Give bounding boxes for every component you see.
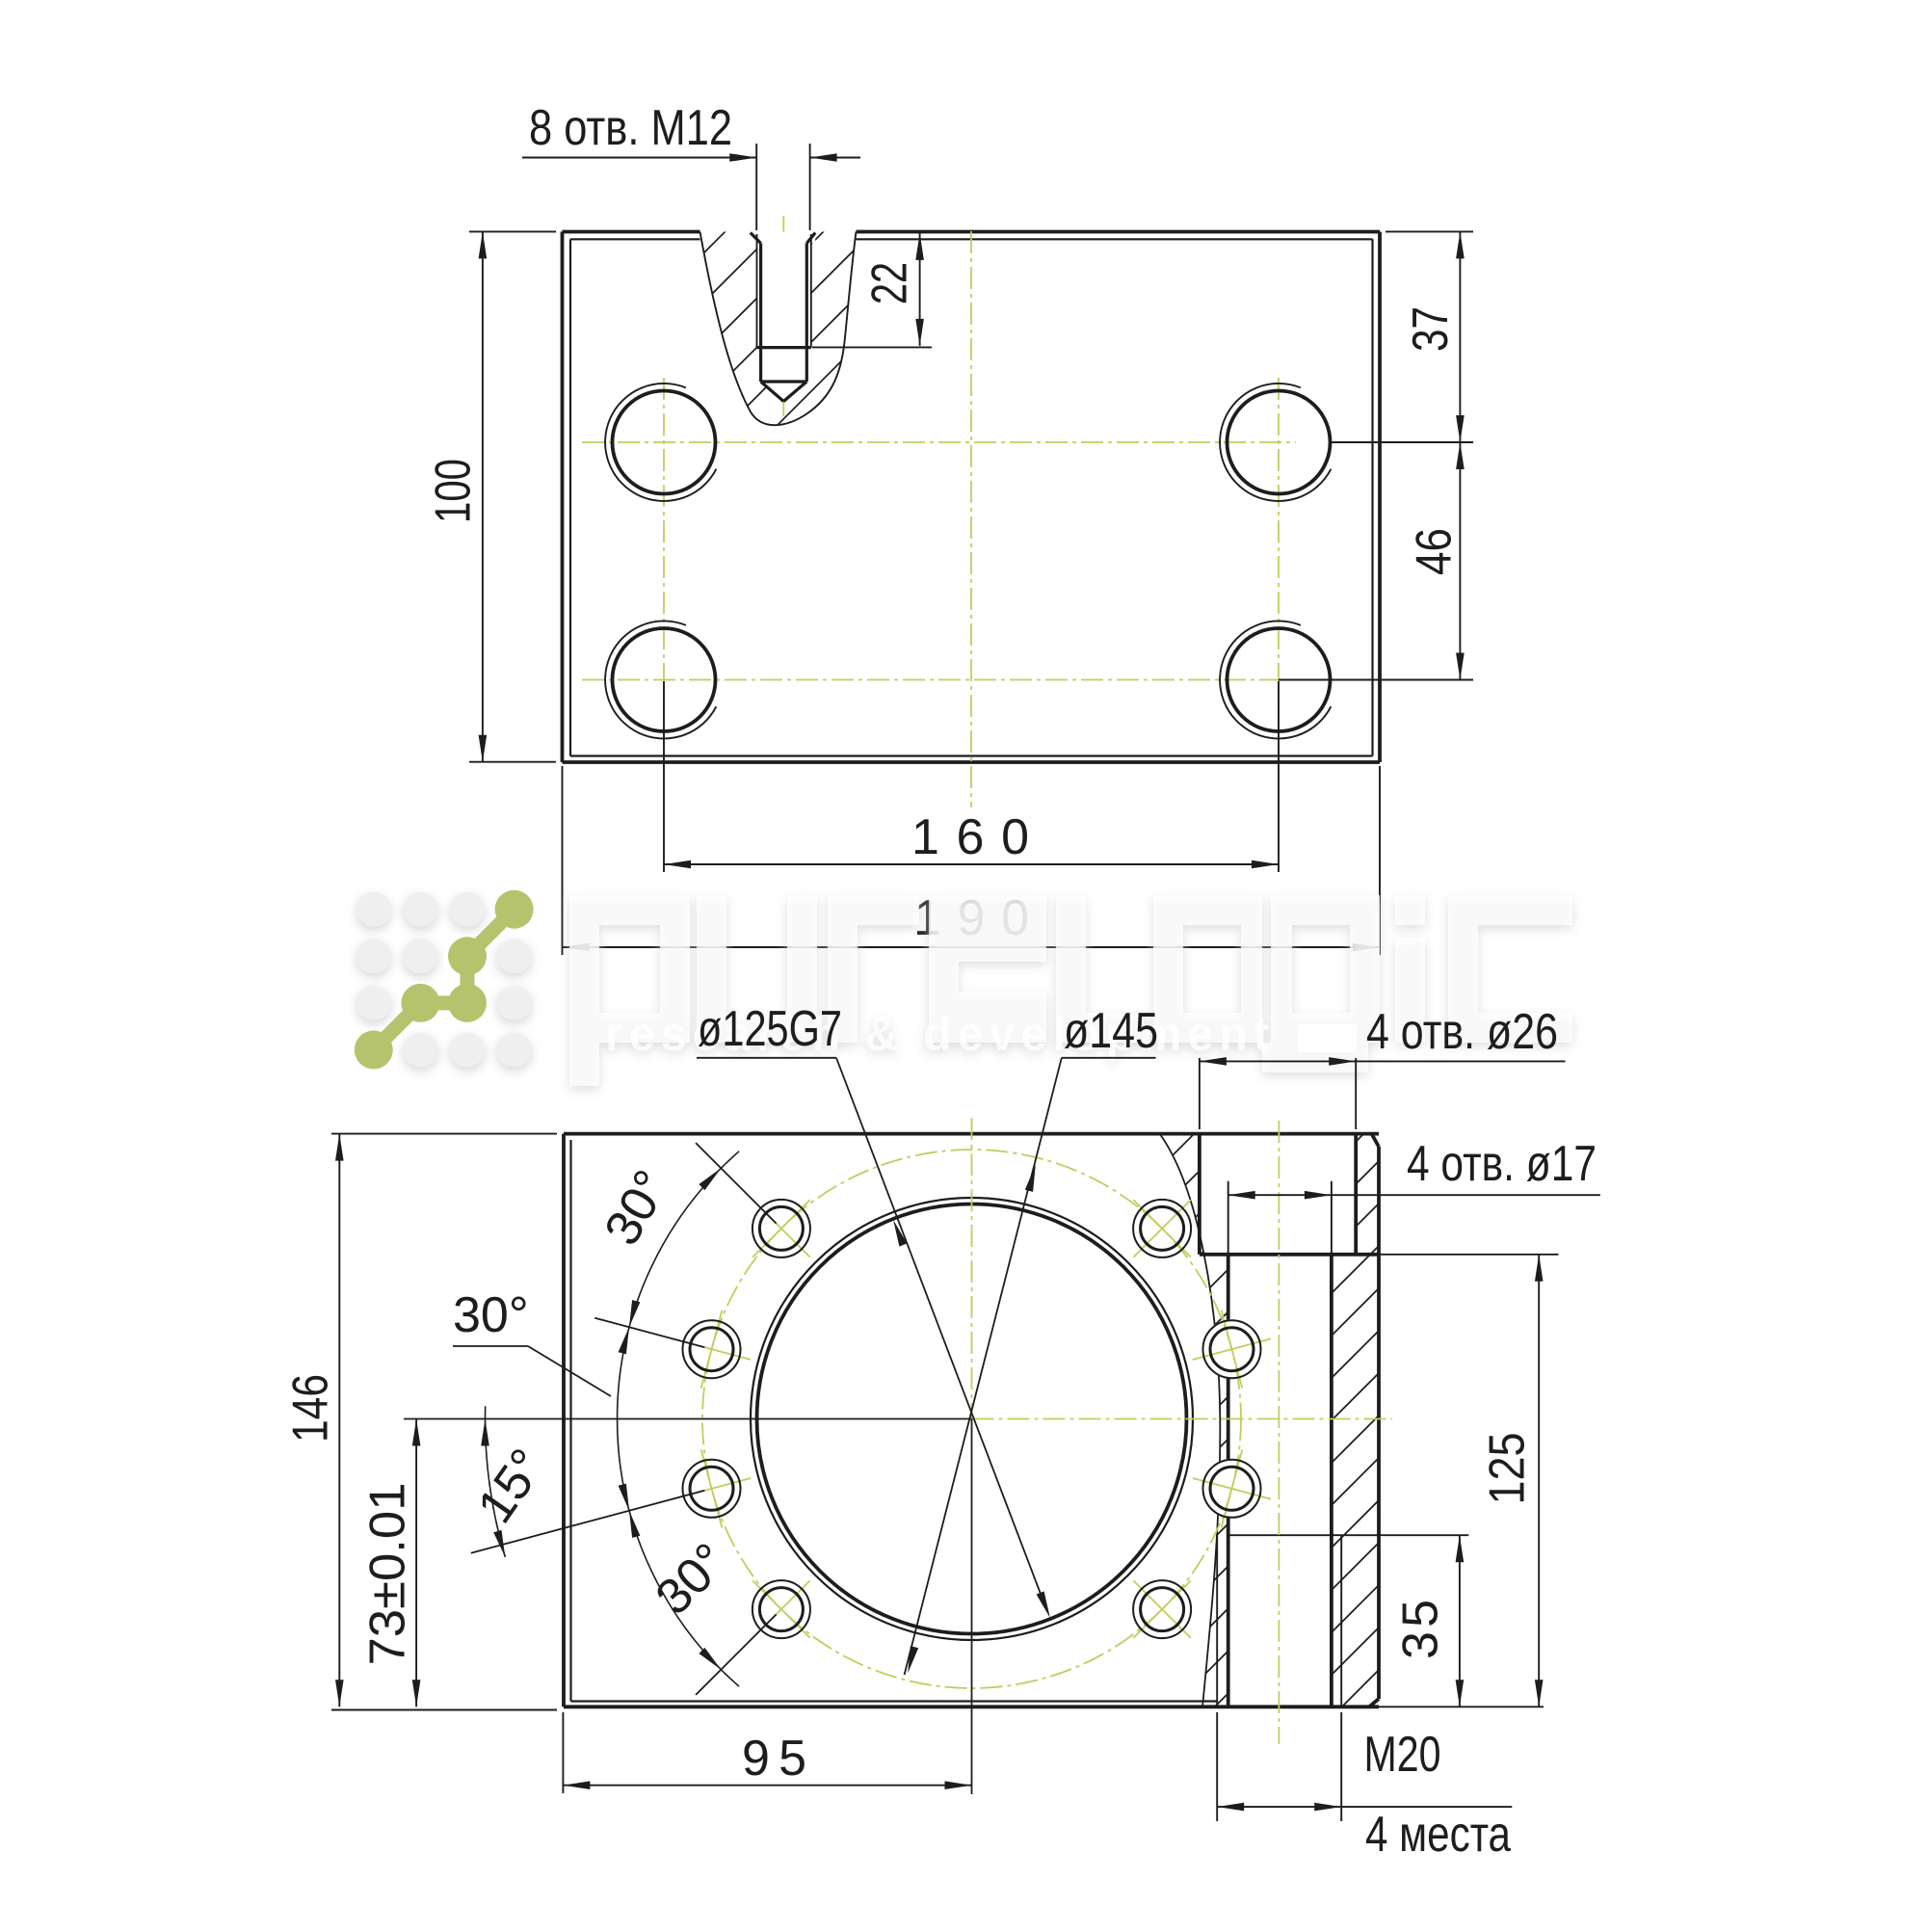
svg-text:8 отв. М12: 8 отв. М12 xyxy=(529,100,732,156)
svg-text:4 отв. ø26: 4 отв. ø26 xyxy=(1366,1004,1558,1060)
svg-text:30°: 30° xyxy=(453,1287,529,1343)
svg-text:M20: M20 xyxy=(1364,1727,1441,1783)
svg-text:125: 125 xyxy=(1480,1433,1536,1505)
svg-text:22: 22 xyxy=(862,262,918,304)
svg-text:160: 160 xyxy=(911,809,1029,865)
svg-text:4 отв. ø17: 4 отв. ø17 xyxy=(1407,1136,1597,1192)
svg-text:ø145: ø145 xyxy=(1064,1003,1158,1059)
svg-text:100: 100 xyxy=(426,459,482,523)
svg-text:ø125G7: ø125G7 xyxy=(698,1001,842,1057)
svg-text:37: 37 xyxy=(1403,306,1459,352)
svg-text:46: 46 xyxy=(1407,528,1463,575)
svg-text:146: 146 xyxy=(283,1374,339,1442)
svg-text:4 места: 4 места xyxy=(1365,1807,1511,1863)
svg-text:73±0.01: 73±0.01 xyxy=(360,1483,416,1666)
